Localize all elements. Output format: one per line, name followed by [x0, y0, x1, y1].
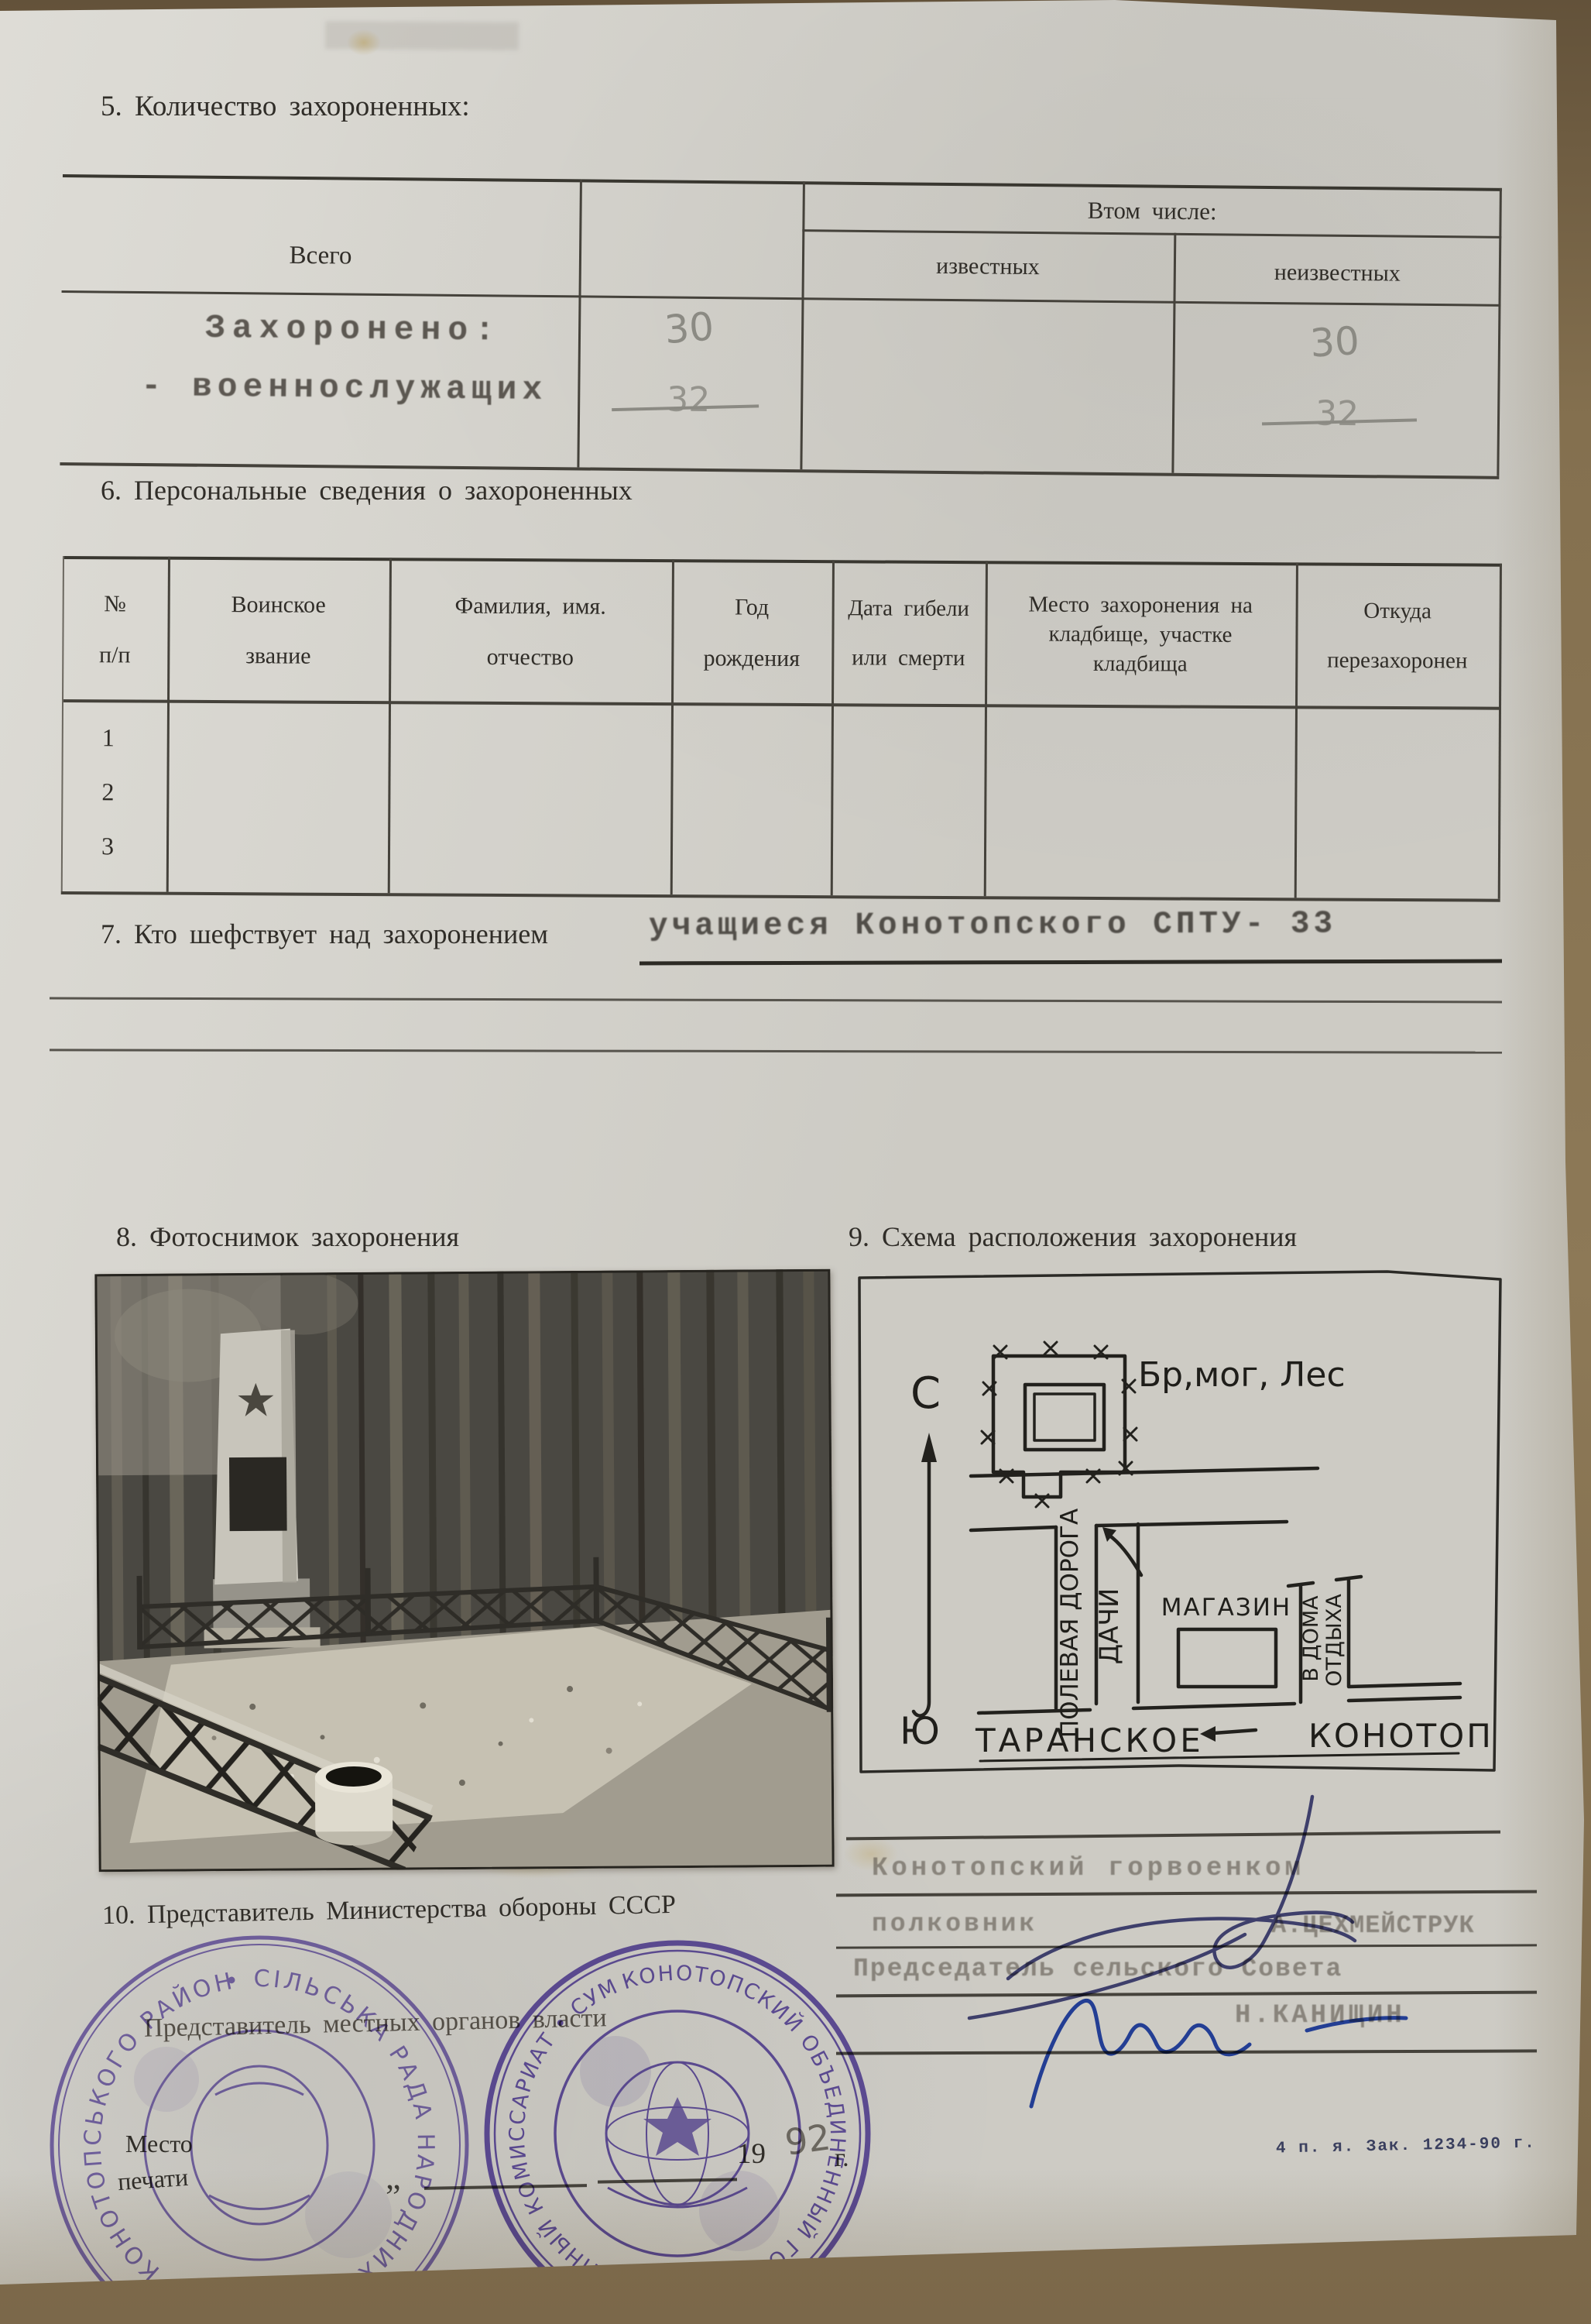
section9-title: 9. Схема расположения захоронения	[849, 1220, 1297, 1253]
section8-title: 8. Фотоснимок захоронения	[116, 1220, 459, 1253]
buried-label-line2: - военнослужащих	[141, 367, 547, 409]
commissar-signature	[969, 1797, 1355, 2018]
unknown-count-crossed: 32	[1294, 393, 1380, 434]
col-header-reburied-from: Откуда перезахоронен	[1295, 574, 1500, 699]
col-header-name: Фамилия, имя. отчество	[389, 569, 672, 695]
burial-photo	[94, 1269, 834, 1873]
unknown-count-value: 30	[1271, 316, 1397, 369]
location-sketch-map: Бр,мог, Лес С Ю ПОЛЕВАЯ ДОРОГА ДАЧИ МАГА…	[853, 1268, 1507, 1780]
section5-title: 5. Количество захороненных:	[101, 90, 470, 123]
map-label-south: Ю	[900, 1710, 940, 1753]
col-header-including: Втом числе:	[802, 187, 1501, 235]
map-label-dachas: ДАЧИ	[1094, 1588, 1125, 1665]
col-header-number: № п/п	[62, 568, 168, 692]
map-label-shop: МАГАЗИН	[1161, 1594, 1291, 1622]
section7-label: 7. Кто шефствует над захоронением	[101, 918, 548, 950]
row-number: 1	[62, 720, 155, 755]
col-header-known: известных	[802, 242, 1174, 292]
handwritten-signatures	[805, 1758, 1587, 2130]
map-label-town-right: КОНОТОП	[1308, 1717, 1493, 1755]
fill-in-line	[50, 997, 1502, 1004]
section6-table: № п/п Воинское звание Фамилия, имя. отче…	[61, 556, 1502, 901]
rule-line	[63, 556, 1502, 567]
paper-sheet: 5. Количество захороненных: Всего Втом ч…	[0, 0, 1591, 2324]
north-arrowhead	[921, 1433, 937, 1462]
north-arrow-line	[914, 1461, 929, 1716]
map-label-field-road: ПОЛЕВАЯ ДОРОГА	[1056, 1509, 1084, 1738]
map-label-town-left: ТАРАНСКОЕ	[975, 1722, 1204, 1759]
col-header-rank: Воинское звание	[167, 568, 389, 693]
total-count-value: 30	[629, 301, 749, 355]
section5-table: Всего Втом числе: известных неизвестных …	[60, 174, 1502, 481]
map-label-grave: Бр,мог, Лес	[1138, 1355, 1346, 1395]
shop-box	[1178, 1629, 1276, 1687]
chairman-signature	[1031, 2000, 1406, 2106]
map-label-north: С	[910, 1368, 941, 1419]
village-council-stamp: • СІЛЬСЬКА РАДА НАРОДНИХ ДЕПУТАТІВ • КОН…	[23, 1913, 503, 2324]
col-header-death-date: Дата гибели или смерти	[832, 572, 986, 696]
fill-in-line	[639, 959, 1502, 966]
rule-line	[63, 174, 1502, 191]
scanned-document: 5. Количество захороненных: Всего Втом ч…	[0, 0, 1591, 2324]
fill-in-line	[50, 1049, 1502, 1053]
col-header-total: Всего	[62, 222, 580, 289]
buried-label-line1: Захоронено:	[205, 309, 502, 350]
rule-line	[62, 699, 1501, 709]
col-header-grave-place: Место захоронения на кладбище, участке к…	[985, 572, 1296, 698]
map-border	[859, 1272, 1500, 1772]
village-stamp-ring-text: • СІЛЬСЬКА РАДА НАРОДНИХ ДЕПУТАТІВ • КОН…	[23, 1913, 472, 2324]
row-number: 2	[61, 774, 154, 809]
path-arrow	[1109, 1535, 1141, 1575]
map-label-rest-homes-1: В ДОМА	[1299, 1595, 1323, 1682]
section6-title: 6. Персональные сведения о захороненных	[101, 474, 633, 506]
memorial-vase	[315, 1762, 393, 1846]
rule-line	[61, 891, 1500, 902]
stamp-star	[643, 2097, 711, 2156]
rule-line	[577, 179, 582, 467]
total-count-crossed: 32	[646, 379, 731, 420]
stain	[347, 29, 381, 56]
bottom-road	[979, 1698, 1460, 1713]
map-label-rest-homes-2: ОТДЫХА	[1322, 1594, 1346, 1687]
col-header-unknown: неизвестных	[1174, 249, 1502, 298]
row-number: 3	[61, 829, 154, 863]
direction-arrow-line	[1214, 1730, 1256, 1733]
section7-value: учащиеся Конотопского СПТУ- 33	[649, 906, 1336, 944]
memorial-plaque	[229, 1457, 287, 1532]
col-header-birth-year: Год рождения	[671, 571, 832, 695]
